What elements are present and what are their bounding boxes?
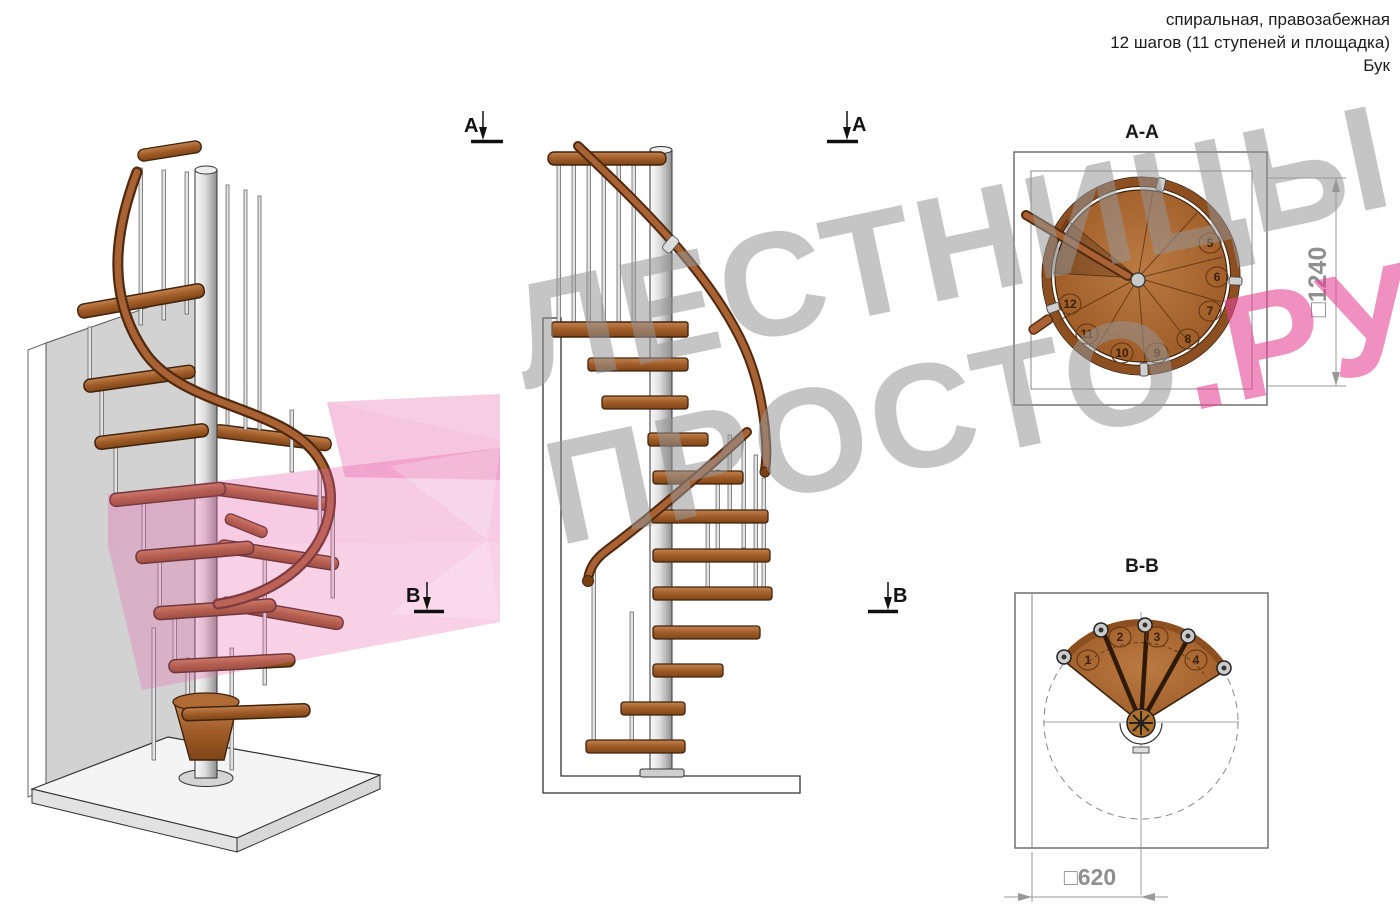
svg-text:2: 2: [1117, 630, 1124, 644]
wall-handrail-stub: [224, 512, 269, 539]
balusters: [88, 168, 335, 770]
svg-text:A: A: [852, 114, 866, 136]
title-line-steps: 12 шагов (11 ступеней и площадка): [1110, 31, 1390, 54]
base-plate-front: [32, 789, 237, 852]
section-marker-a-right: A: [827, 111, 866, 142]
handrail: [118, 172, 331, 604]
svg-text:B: B: [893, 585, 907, 607]
base-plate-top: [32, 737, 380, 838]
bb-dashed-circle: [1044, 625, 1238, 819]
section-marker-b-left: B: [406, 582, 444, 612]
bb-step-numbers: 1 2 3 4: [1077, 627, 1207, 670]
bb-dimension-label: □620: [1064, 864, 1116, 890]
pole-floor-flange: [640, 769, 684, 777]
perspective-view: [28, 140, 380, 852]
wall-face: [46, 289, 200, 790]
bb-step-edges: [1103, 626, 1189, 723]
pole-flange: [179, 770, 233, 787]
bb-step-fan: [1063, 623, 1226, 723]
brand-watermark: ЛЕСТНИЦЫ ПРОСТО.РУ: [498, 54, 1400, 575]
section-marker-b-right: B: [868, 582, 907, 612]
bb-pole-hub: [1127, 709, 1155, 737]
svg-text:3: 3: [1154, 630, 1161, 644]
top-rail: [137, 140, 202, 162]
technical-drawing-sheet: A-A: [0, 0, 1400, 911]
title-block: спиральная, правозабежная 12 шагов (11 с…: [1110, 8, 1390, 77]
pole-base-cone: [174, 702, 238, 760]
center-pole: [195, 170, 217, 778]
section-bb-title: B-B: [1125, 556, 1159, 577]
title-line-material: Бук: [1110, 54, 1390, 77]
landing-rail: [548, 152, 666, 165]
svg-text:1: 1: [1085, 653, 1092, 667]
wall-edge: [28, 343, 46, 797]
bb-bolts: [1057, 618, 1231, 675]
svg-text:4: 4: [1193, 653, 1200, 667]
near-steps: [77, 283, 310, 721]
svg-text:B: B: [406, 585, 420, 607]
section-marker-a-left: A: [464, 111, 503, 142]
svg-text:A: A: [464, 115, 478, 137]
title-line-type: спиральная, правозабежная: [1110, 8, 1390, 31]
bb-dimension: □620: [1004, 852, 1168, 902]
far-steps: [213, 424, 344, 630]
base-plate-side: [237, 775, 380, 852]
bb-outer-frame: [1015, 593, 1268, 848]
section-bb-view: B-B: [1004, 556, 1268, 902]
